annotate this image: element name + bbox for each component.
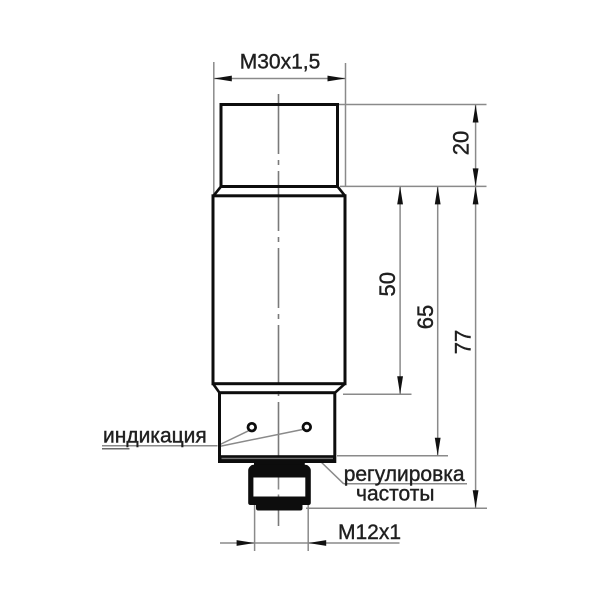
svg-text:индикация: индикация — [103, 425, 207, 448]
svg-text:20: 20 — [449, 131, 474, 155]
svg-text:M12x1: M12x1 — [338, 521, 401, 544]
svg-text:М30х1,5: М30х1,5 — [240, 51, 321, 74]
svg-text:65: 65 — [413, 305, 438, 329]
svg-text:77: 77 — [451, 330, 476, 354]
svg-text:частоты: частоты — [356, 483, 434, 506]
svg-text:50: 50 — [375, 272, 400, 296]
